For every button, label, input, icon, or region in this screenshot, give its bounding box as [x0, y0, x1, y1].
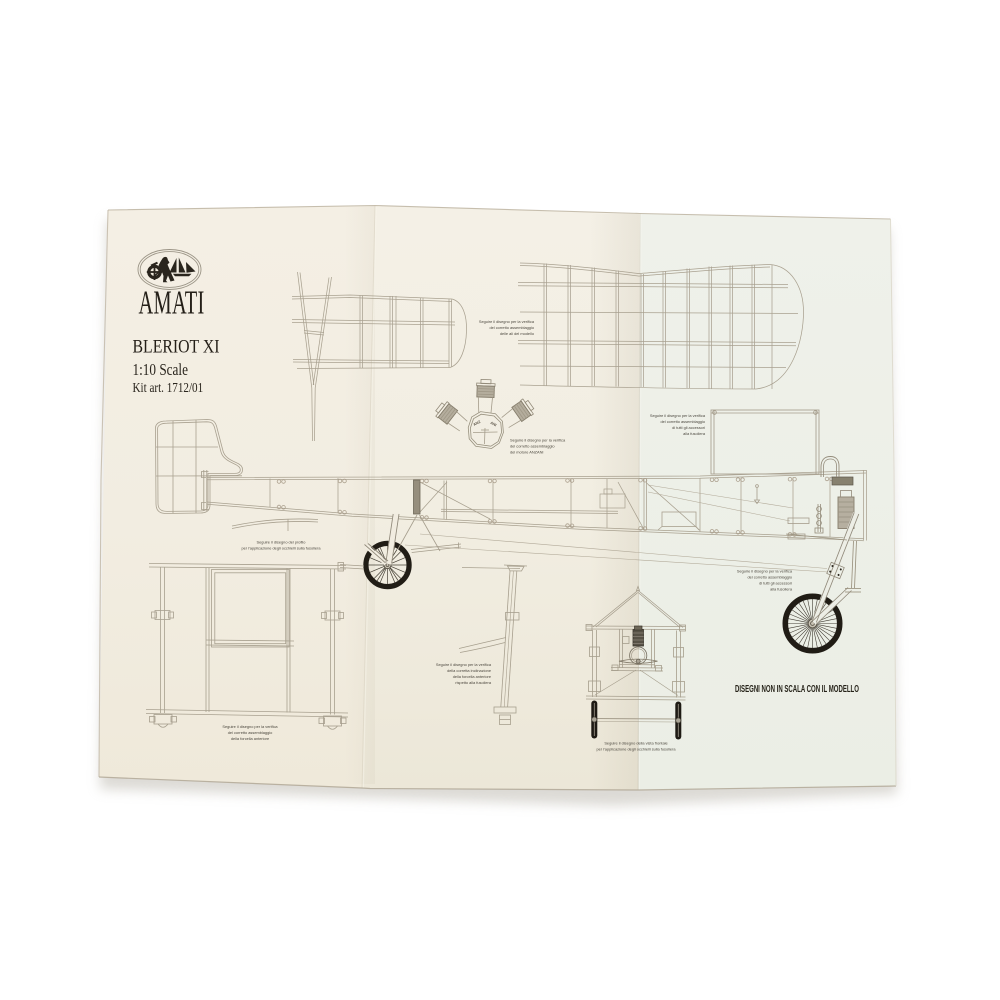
- svg-text:del corretto assemblaggio: del corretto assemblaggio: [747, 575, 792, 580]
- svg-text:del corretto assemblaggio: del corretto assemblaggio: [228, 730, 273, 735]
- svg-text:per l'applicazione degli occhi: per l'applicazione degli occhielli sulla…: [241, 546, 321, 551]
- svg-text:Kit art. 1712/01: Kit art. 1712/01: [133, 380, 204, 395]
- svg-text:della forcella anteriore: della forcella anteriore: [231, 736, 269, 741]
- svg-text:del motore ANZANI: del motore ANZANI: [510, 450, 544, 455]
- svg-text:BLERIOT XI: BLERIOT XI: [133, 335, 220, 357]
- svg-text:del corretto assemblaggio: del corretto assemblaggio: [660, 419, 705, 424]
- svg-text:alla fusoliera: alla fusoliera: [683, 431, 706, 436]
- svg-text:Seguire il disegno per la veri: Seguire il disegno per la verifica: [510, 438, 566, 443]
- svg-text:Seguire il disegno della vista: Seguire il disegno della vista frontale: [604, 741, 667, 746]
- svg-text:rispetto alla fusoliera: rispetto alla fusoliera: [455, 680, 492, 685]
- svg-text:del corretto assemblaggio: del corretto assemblaggio: [489, 325, 534, 330]
- svg-text:delle ali del modello: delle ali del modello: [500, 331, 534, 336]
- svg-text:della forcella anteriore: della forcella anteriore: [453, 674, 491, 679]
- svg-text:Seguire il disegno per la veri: Seguire il disegno per la verifica: [222, 724, 278, 729]
- svg-text:per l'applicazione degli occhi: per l'applicazione degli occhielli sulla…: [596, 747, 676, 752]
- svg-text:Seguire il disegno per la veri: Seguire il disegno per la verifica: [650, 413, 706, 418]
- svg-text:della corretta inclinazione: della corretta inclinazione: [447, 668, 491, 673]
- svg-text:1:10 Scale: 1:10 Scale: [133, 360, 189, 379]
- svg-text:Seguire il disegno del profilo: Seguire il disegno del profilo: [257, 540, 306, 545]
- svg-text:del corretto assemblaggio: del corretto assemblaggio: [510, 444, 555, 449]
- svg-text:Seguire il disegno per la veri: Seguire il disegno per la verifica: [479, 319, 535, 324]
- svg-text:di tutti gli accessori: di tutti gli accessori: [759, 581, 792, 586]
- svg-text:di tutti gli accessori: di tutti gli accessori: [672, 425, 705, 430]
- svg-text:AMATI: AMATI: [139, 284, 205, 322]
- svg-text:DISEGNI NON IN SCALA CON IL MO: DISEGNI NON IN SCALA CON IL MODELLO: [735, 682, 859, 694]
- svg-text:Seguire il disegno per la veri: Seguire il disegno per la verifica: [436, 662, 492, 667]
- svg-text:alla fusoliera: alla fusoliera: [770, 587, 793, 592]
